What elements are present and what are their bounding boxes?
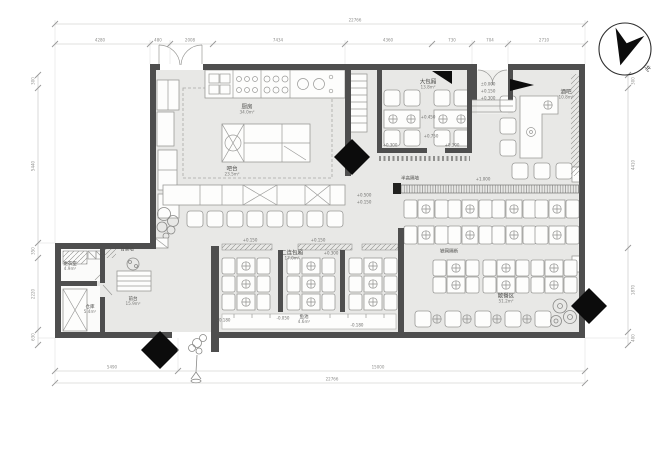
level-label: +0.150 (357, 200, 372, 205)
room-label-kitchen: 厨房 34.0m² (239, 104, 254, 115)
room-area: 34.0m² (239, 111, 254, 116)
room-label-storage: 仓库 5.4m² (84, 305, 96, 315)
wall-name: 背景墙 (120, 247, 134, 252)
level-label: +0.450 (421, 115, 436, 120)
level-label: ±0.000 (481, 82, 496, 87)
level-label: +0.750 (424, 134, 439, 139)
dim-total-top: 22766 (349, 18, 362, 23)
dim-right: 400 (631, 334, 636, 342)
level-label: -0.180 (218, 318, 231, 323)
room-label-bar-counter: 吧台 23.5m² (224, 166, 239, 177)
level-label: +0.300 (383, 143, 398, 148)
dim-top: 2710 (539, 38, 549, 43)
level-label: +0.300 (324, 251, 339, 256)
room-area: 5.4m² (84, 310, 96, 315)
room-label-changing-room: 更衣室 4.9m² (63, 262, 77, 272)
wall-name: 半高隔墙 (401, 176, 419, 181)
wall-name: 铁网隔断 (440, 249, 458, 254)
level-label: +0.500 (357, 193, 372, 198)
plan-linework (0, 0, 660, 460)
room-area: 13.8m² (420, 86, 437, 91)
dim-top: 480 (154, 38, 162, 43)
level-label: -0.180 (351, 323, 364, 328)
dim-bottom: 5490 (107, 365, 117, 370)
dim-top: 7434 (273, 38, 283, 43)
room-label-reception: 前台 15.9m² (125, 297, 140, 307)
floor-plan-drawing: 厨房 34.0m² 吧台 23.5m² 大包厢 13.8m² 酒吧 10.8m²… (0, 0, 660, 460)
room-area: 4.6m² (298, 320, 310, 325)
dim-top: 704 (486, 38, 494, 43)
dim-top: 2008 (185, 38, 195, 43)
dim-right: 4410 (631, 160, 636, 170)
label-mesh-partition: 铁网隔断 (440, 249, 458, 254)
level-label: +0.150 (481, 89, 496, 94)
dim-right: 1870 (631, 285, 636, 295)
dim-right: 300 (631, 77, 636, 85)
stairs (350, 74, 367, 132)
room-label-open-dining: 散餐区 51.2m² (498, 293, 515, 304)
room-area: 15.9m² (125, 302, 140, 307)
level-label: +1.000 (476, 177, 491, 182)
dim-top: 4360 (383, 38, 393, 43)
room-area: 4.9m² (63, 267, 77, 272)
room-area: 51.2m² (498, 300, 515, 305)
dim-left: 350 (31, 247, 36, 255)
label-feature-wall: 背景墙 (120, 247, 134, 252)
dim-bottom: 15000 (372, 365, 385, 370)
dim-total-bottom: 22766 (326, 377, 339, 382)
dim-top: 4280 (95, 38, 105, 43)
room-area: 23.5m² (224, 173, 239, 178)
level-label: +0.300 (445, 143, 460, 148)
room-label-large-box: 大包厢 13.8m² (420, 79, 437, 90)
dim-left: 630 (31, 333, 36, 341)
dim-left: 2220 (31, 289, 36, 299)
dim-top: 730 (448, 38, 456, 43)
level-label: -0.050 (277, 316, 290, 321)
room-label-double-box: 二连包厢 17.0m² (281, 250, 303, 261)
level-label: +0.150 (243, 238, 258, 243)
room-area: 10.8m² (558, 96, 573, 101)
room-area: 17.0m² (281, 257, 303, 262)
level-label: +0.300 (481, 96, 496, 101)
dim-left: 300 (31, 77, 36, 85)
room-label-pub: 酒吧 10.8m² (558, 89, 573, 100)
room-label-fish-pond: 鱼池 4.6m² (298, 315, 310, 325)
label-half-wall: 半高隔墙 (401, 176, 419, 181)
level-label: +0.150 (311, 238, 326, 243)
dim-left: 5440 (31, 161, 36, 171)
